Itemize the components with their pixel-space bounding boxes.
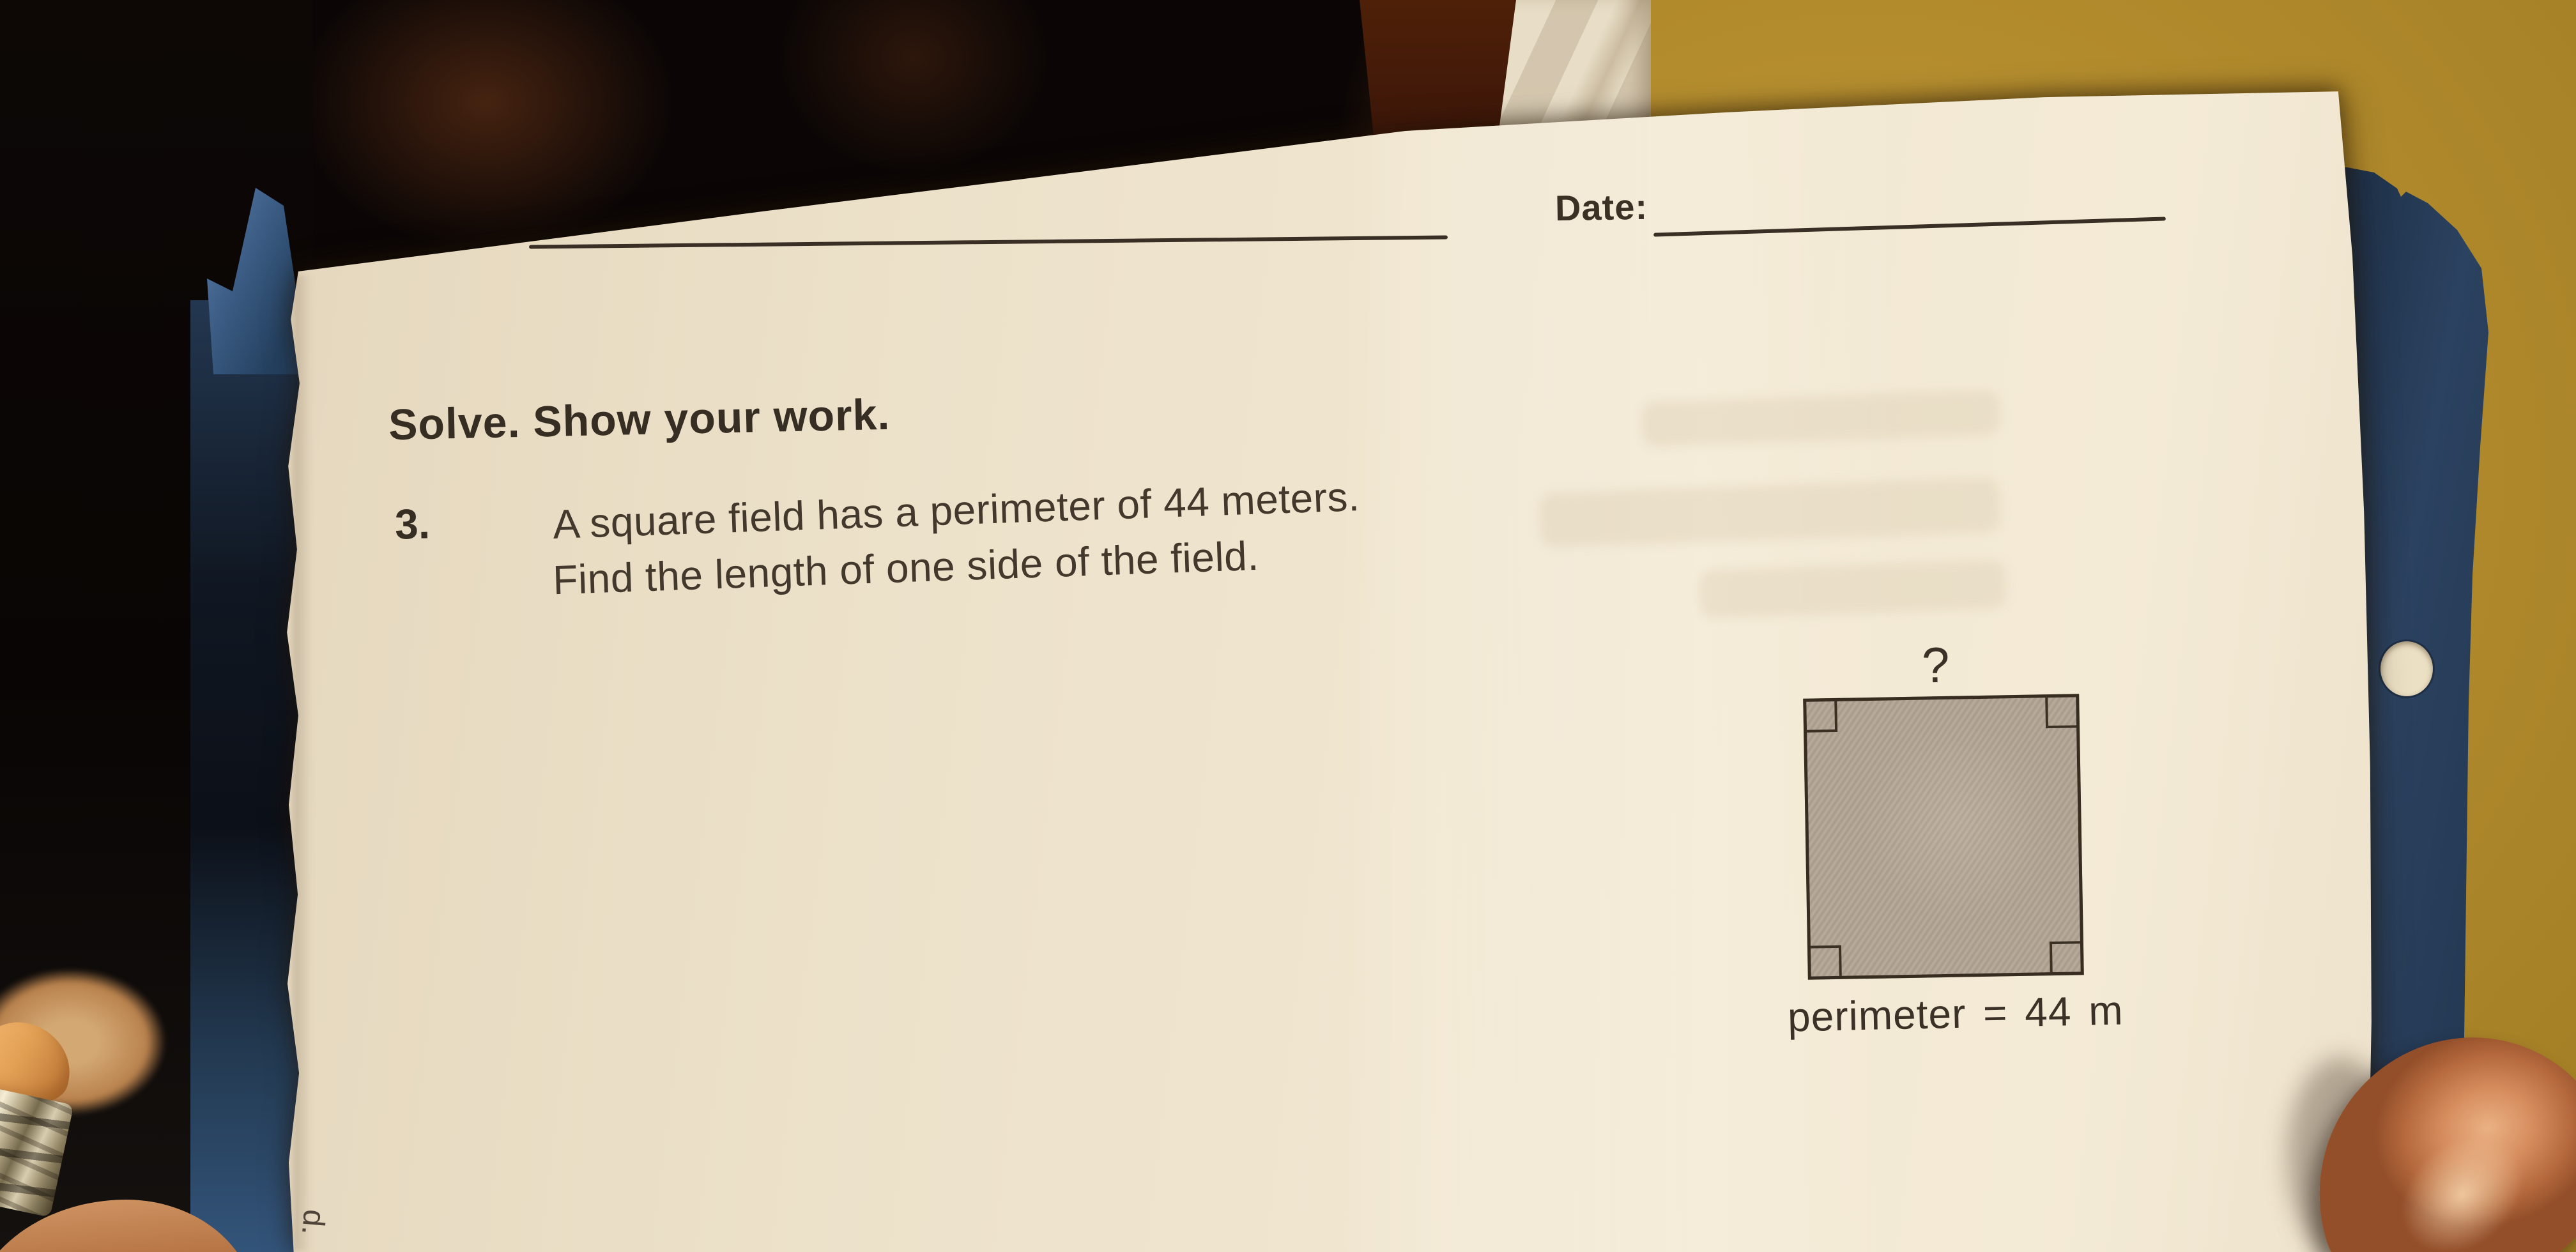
bleed-through-text: [1699, 560, 2007, 619]
name-underline: [529, 235, 1448, 248]
thumb: [2311, 1040, 2576, 1252]
thumb-skin: [2282, 1004, 2576, 1252]
figure-caption: perimeter = 44 m: [1787, 987, 2124, 1041]
worksheet-paper-wrap: Name: Laila #9 Date: Solve. Show your wo…: [0, 0, 2576, 1252]
square-figure: [1803, 694, 2084, 979]
figure-unknown-side-label: ?: [1921, 636, 1950, 695]
torn-edge-shadow: [293, 275, 312, 1252]
right-angle-mark: [1806, 701, 1837, 733]
right-angle-mark: [2045, 697, 2076, 728]
problem-number: 3.: [394, 499, 431, 548]
margin-text-fragment: d.: [295, 1208, 332, 1237]
name-label: Name:: [389, 190, 502, 234]
right-angle-mark: [1811, 945, 1842, 977]
section-heading: Solve. Show your work.: [388, 390, 891, 450]
photo-stage: Name: Laila #9 Date: Solve. Show your wo…: [0, 0, 2576, 1252]
pencil-ferrule: [0, 1082, 74, 1218]
date-underline: [1653, 217, 2166, 236]
date-label: Date:: [1554, 186, 1648, 229]
worksheet-paper: Name: Laila #9 Date: Solve. Show your wo…: [0, 0, 2576, 1252]
bleed-through-text: [1539, 477, 2001, 547]
thumb-highlight: [2379, 1111, 2547, 1252]
right-angle-mark: [2050, 941, 2081, 972]
bleed-through-text: [1641, 390, 2000, 447]
handwritten-name: Laila #9: [572, 125, 919, 237]
